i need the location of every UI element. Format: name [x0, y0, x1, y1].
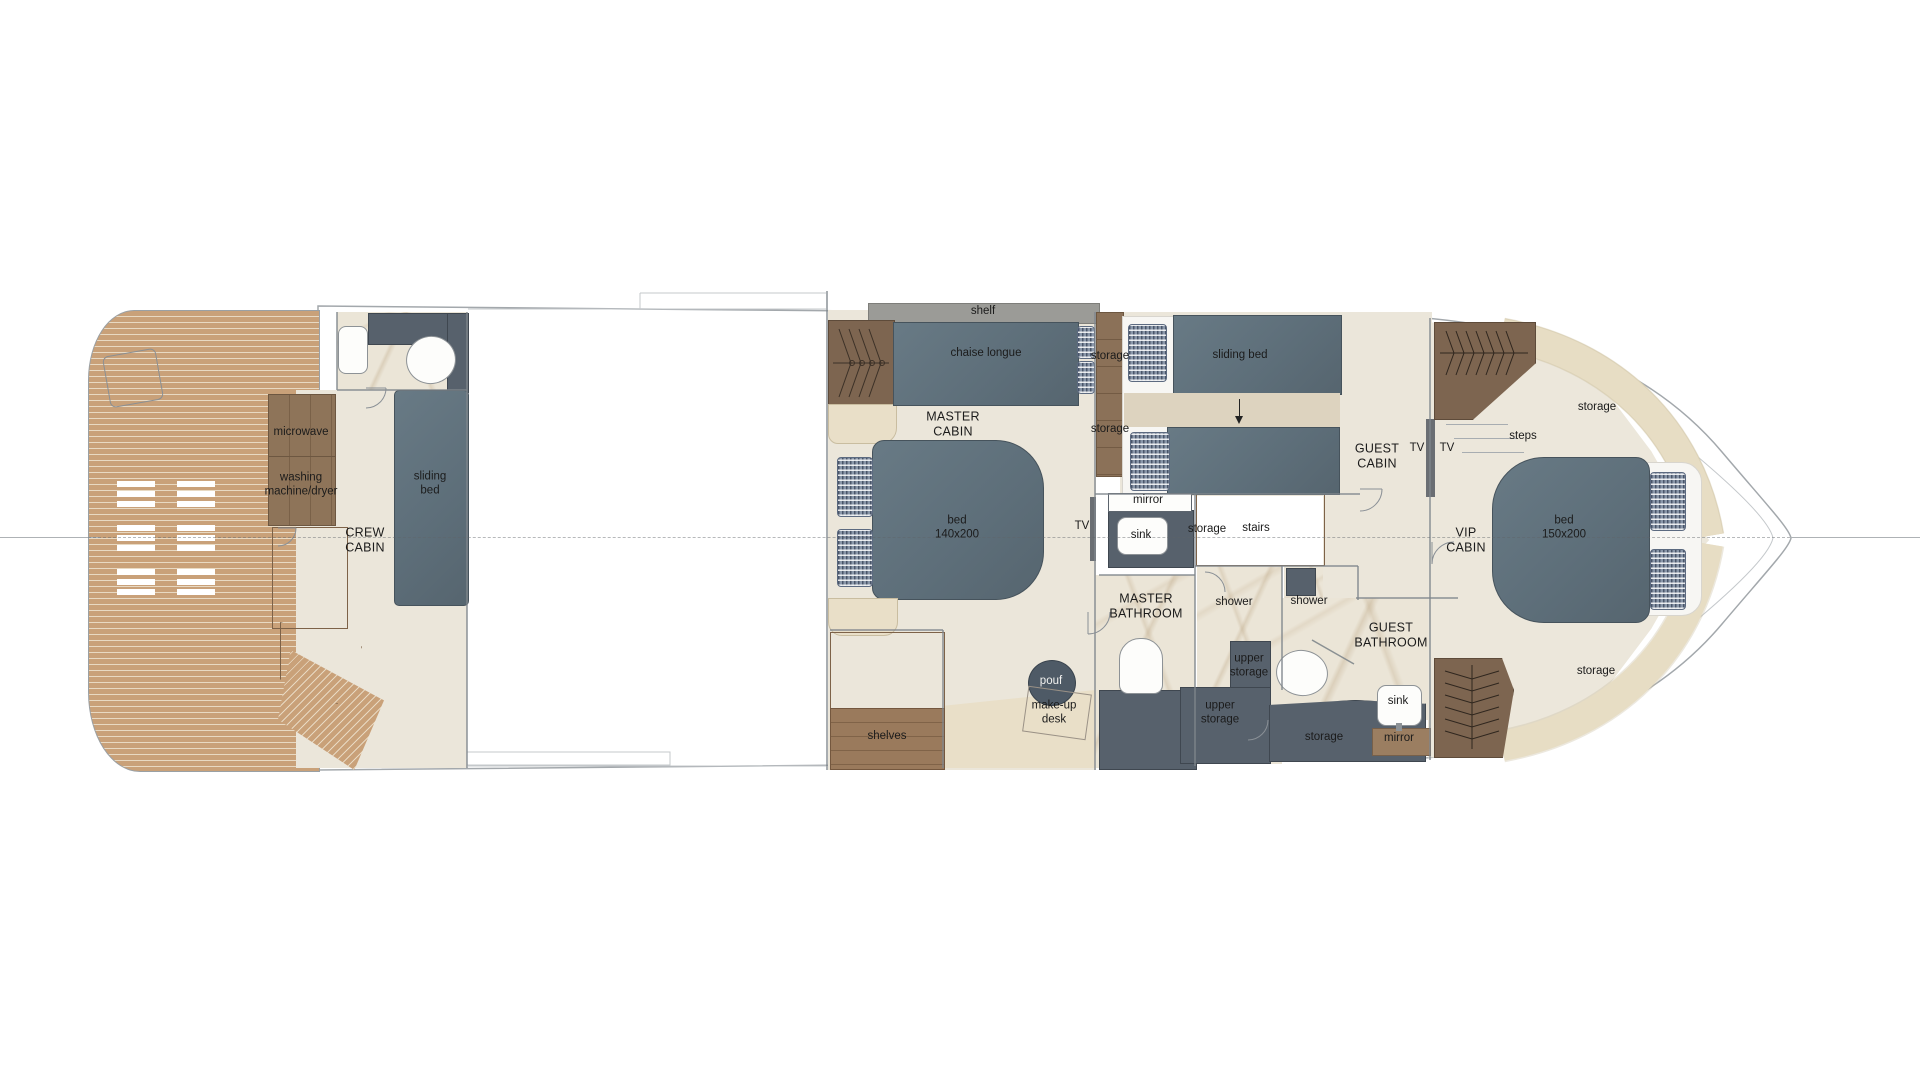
label-vip-storage-bottom: storage [1577, 665, 1615, 679]
label-pouf: pouf [1040, 675, 1062, 689]
label-guest-mirror: mirror [1384, 732, 1414, 746]
label-shelves: shelves [868, 730, 907, 744]
label-crew-cabin: CREW CABIN [345, 525, 384, 555]
label-upper-storage-fwd: upper storage [1230, 652, 1268, 679]
floor-plan-canvas: microwave washing machine/dryer CREW CAB… [0, 0, 1920, 1080]
label-guest-tv: TV [1410, 442, 1425, 456]
label-microwave: microwave [274, 426, 329, 440]
label-chaise-longue: chaise longue [951, 347, 1022, 361]
label-guest-sliding-bed: sliding bed [1213, 349, 1268, 363]
label-master-shower: shower [1215, 596, 1252, 610]
label-shelf: shelf [971, 305, 995, 319]
label-master-cabin: MASTER CABIN [926, 409, 980, 439]
label-guest-cabin: GUEST CABIN [1355, 441, 1399, 471]
label-guest-bath-storage: storage [1305, 731, 1343, 745]
label-master-bathroom: MASTER BATHROOM [1109, 591, 1182, 621]
label-master-tv: TV [1075, 520, 1090, 534]
label-upper-storage-aft: upper storage [1201, 699, 1239, 726]
label-steps: steps [1509, 430, 1537, 444]
label-master-mirror: mirror [1133, 494, 1163, 508]
centerline-fwd-segment [1790, 537, 1920, 538]
label-vip-tv: TV [1440, 442, 1455, 456]
centerline-aft-segment [0, 537, 100, 538]
label-crew-sliding-bed: sliding bed [414, 470, 447, 497]
label-stairs-storage: storage [1188, 523, 1226, 537]
label-makeup-desk: make-up desk [1032, 699, 1077, 726]
label-guest-shower: shower [1290, 595, 1327, 609]
label-storage-column-upper: storage [1091, 350, 1129, 364]
label-stairs: stairs [1242, 522, 1269, 536]
label-guest-sink: sink [1388, 695, 1408, 709]
label-vip-bed: bed 150x200 [1542, 514, 1586, 541]
label-master-sink: sink [1131, 529, 1151, 543]
label-storage-column-lower: storage [1091, 423, 1129, 437]
label-vip-storage-top: storage [1578, 401, 1616, 415]
label-washing-machine: washing machine/dryer [265, 471, 338, 498]
label-guest-bathroom: GUEST BATHROOM [1354, 620, 1427, 650]
label-master-bed: bed 140x200 [935, 514, 979, 541]
label-vip-cabin: VIP CABIN [1446, 525, 1485, 555]
